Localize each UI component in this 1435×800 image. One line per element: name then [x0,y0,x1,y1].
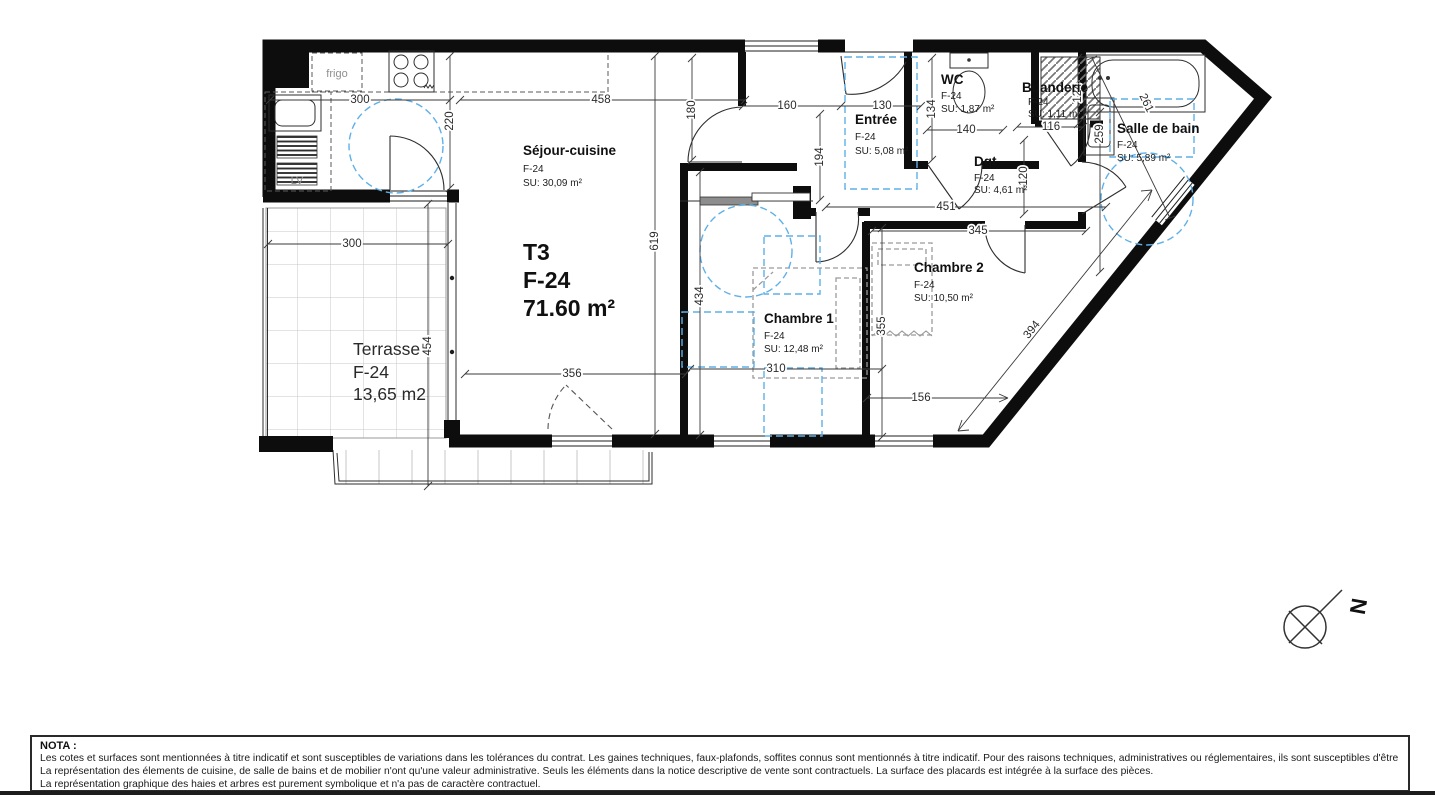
svg-text:Dgt: Dgt [974,154,997,169]
svg-text:SU: 1,87 m²: SU: 1,87 m² [941,104,995,115]
svg-text:310: 310 [766,363,785,375]
svg-text:F-24: F-24 [523,267,571,293]
svg-text:134: 134 [926,99,938,119]
svg-text:345: 345 [968,225,987,237]
svg-text:F-24: F-24 [353,362,389,382]
dim-buanderie-width: 116 [1013,121,1087,133]
svg-text:140: 140 [956,124,975,136]
svg-text:SU: 5,08 m²: SU: 5,08 m² [855,146,909,157]
dim-sejour-top: 458 [456,94,749,106]
svg-text:261: 261 [1136,92,1155,115]
nota-box: NOTA : Les cotes et surfaces sont mentio… [30,735,1410,792]
sink-drainer-1 [277,136,317,158]
kitchen-window [390,189,447,203]
svg-text:SU: 1,11 m²: SU: 1,11 m² [1028,109,1081,120]
svg-text:300: 300 [350,94,369,106]
entrance-door-opening [845,39,913,53]
svg-text:71.60 m²: 71.60 m² [523,295,615,321]
room-label-chambre2: Chambre 2 F-24 SU: 10,50 m² [914,260,984,304]
north-label: N [1345,596,1372,616]
svg-text:SU: 30,09 m²: SU: 30,09 m² [523,178,583,189]
svg-text:Salle de bain: Salle de bain [1117,121,1200,136]
room-label-entree: Entrée F-24 SU: 5,08 m² [855,112,909,157]
fridge-label: frigo [326,68,347,80]
page-bottom-rule [0,791,1435,795]
svg-text:Chambre 1: Chambre 1 [764,311,834,326]
dim-hall-opening: 180 [686,54,698,164]
svg-text:SU: 4,61 m²: SU: 4,61 m² [974,185,1028,196]
dim-chambre2-bottom: 156 [863,392,1008,404]
svg-text:F-24: F-24 [1028,97,1049,108]
svg-text:F-24: F-24 [523,164,544,175]
svg-text:T3: T3 [523,239,550,265]
unit-title: T3 F-24 71.60 m² [523,239,615,321]
dim-entree-depth: 194 [814,110,826,204]
door-kitchen [390,136,444,190]
structural-column [793,186,811,219]
svg-text:619: 619 [649,231,661,250]
dishwasher-label: LV [291,175,304,187]
north-compass: N [1284,590,1372,648]
chambre1-window [714,426,770,448]
nota-title: NOTA : [40,740,1400,753]
door-chambre2 [985,225,1025,273]
chambre2-window [875,426,933,448]
dim-kitchen-top: 300 [266,94,454,106]
dim-entree-window: 160 130 [739,100,925,112]
svg-text:Buanderie: Buanderie [1022,80,1089,95]
svg-text:F-24: F-24 [764,331,785,342]
turning-circle-chambre1 [700,205,792,297]
compass-cross [1289,590,1342,644]
svg-text:F-24: F-24 [941,91,962,102]
room-label-sejour: Séjour-cuisine F-24 SU: 30,09 m² [523,143,617,189]
dim-chambre1-height: 434 [694,168,706,439]
balcony-floor [335,450,652,484]
dim-dgt-height: 120 [1018,136,1030,218]
svg-text:WC: WC [941,72,964,87]
svg-text:356: 356 [562,368,581,380]
dim-chambre1-width: 310 [686,363,886,375]
dim-sdb-left: 259 [1094,108,1106,276]
svg-text:194: 194 [814,147,826,167]
room-label-chambre1: Chambre 1 F-24 SU: 12,48 m² [764,311,834,355]
svg-text:451: 451 [936,201,955,213]
dim-sejour-height: 619 [649,52,661,438]
svg-text:156: 156 [911,392,930,404]
svg-text:SU: 5,89 m²: SU: 5,89 m² [1117,153,1171,164]
door-terrace-dashed [548,385,612,429]
stove [389,51,434,92]
floor-plan-page: 300 458 180 160 130 194 134 140 116 124 … [0,0,1435,800]
entrance-door [841,56,906,94]
svg-text:F-24: F-24 [1117,140,1138,151]
clear-space-chambre1-a [682,312,754,367]
dim-sejour-bottom: 356 [461,368,690,380]
svg-text:434: 434 [694,286,706,306]
svg-text:130: 130 [872,100,891,112]
turning-circle-kitchen [349,99,443,193]
door-sdb [1082,162,1126,214]
svg-text:458: 458 [591,94,610,106]
room-label-wc: WC F-24 SU: 1,87 m² [941,72,995,115]
svg-text:SU: 10,50 m²: SU: 10,50 m² [914,293,974,304]
svg-text:116: 116 [1042,121,1060,133]
svg-text:F-24: F-24 [974,173,995,184]
svg-text:120: 120 [1018,166,1030,185]
kitchen-corner-column [263,40,309,88]
svg-text:13,65 m2: 13,65 m2 [353,384,426,404]
counter-outline [312,52,608,92]
svg-text:394: 394 [1021,318,1043,341]
floor-plan-drawing: 300 458 180 160 130 194 134 140 116 124 … [0,0,1435,800]
door-chambre1 [816,212,859,262]
nota-line-1: Les cotes et surfaces sont mentionnées à… [40,753,1400,766]
svg-text:300: 300 [342,238,361,250]
nota-line-3: La représentation graphique des haies et… [40,779,1400,792]
svg-text:Entrée: Entrée [855,112,898,127]
svg-text:Séjour-cuisine: Séjour-cuisine [523,143,617,158]
dim-wc-height: 134 [926,54,938,164]
terrace-wall-block [259,436,333,452]
clear-space-chambre1-b [764,236,820,294]
svg-text:Terrasse: Terrasse [353,339,420,359]
svg-text:180: 180 [686,100,698,119]
svg-text:Chambre 2: Chambre 2 [914,260,984,275]
svg-text:F-24: F-24 [914,280,935,291]
svg-text:SU: 12,48 m²: SU: 12,48 m² [764,344,824,355]
svg-text:F-24: F-24 [855,132,876,143]
svg-text:160: 160 [777,100,796,112]
sejour-south-window [552,426,612,448]
svg-text:259: 259 [1094,124,1106,143]
svg-text:355: 355 [876,316,888,335]
dim-kitchen-depth: 220 [444,52,456,192]
nota-line-2: La représentation des élements de cuisin… [40,766,1400,779]
svg-text:220: 220 [444,111,456,130]
kitchen [263,40,608,191]
dim-wc-width: 140 [923,124,1007,136]
svg-text:454: 454 [422,336,434,356]
hall-top-window [745,39,818,93]
